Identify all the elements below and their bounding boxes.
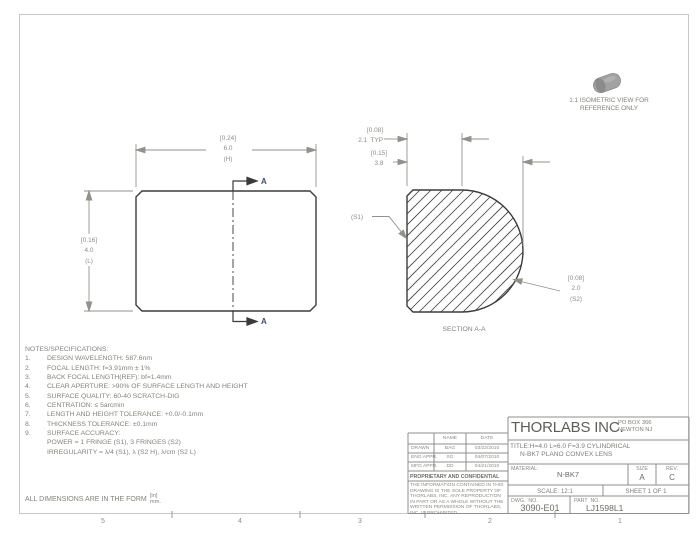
units-note: ALL DIMENSIONS ARE IN THE FORM [in] mm.	[25, 493, 161, 505]
sheet-value: SHEET 1 OF 1	[625, 488, 666, 495]
section-arrow-label-top: A	[261, 177, 267, 186]
approval-date: 04/07/2010	[475, 455, 499, 460]
note-item: 8.THICKNESS TOLERANCE: ±0.1mm	[25, 420, 248, 429]
approval-date: 03/22/2010	[475, 446, 499, 451]
units-fraction: [in] mm.	[150, 493, 161, 505]
note-text: DESIGN WAVELENGTH: 587.6nm	[47, 354, 152, 363]
proprietary-heading: PROPRIETARY AND CONFIDENTIAL	[410, 474, 499, 480]
note-number: 1.	[25, 354, 47, 363]
note-text: CENTRATION: ≤ 5arcmin	[47, 401, 124, 410]
size-value: A	[639, 473, 644, 482]
material-value: N-BK7	[557, 470, 579, 479]
note-text: POWER = 1 FRINGE (S1), 3 FRINGES (S2)	[47, 438, 181, 447]
approval-name: SG	[446, 455, 453, 460]
note-item: 9.SURFACE ACCURACY:	[25, 429, 248, 438]
units-mm: mm.	[150, 499, 161, 505]
drawing-sheet: 1:1 ISOMETRIC VIEW FOR REFERENCE ONLY [0…	[0, 0, 696, 540]
rev-label: REV.	[666, 466, 678, 472]
dim-value: 4.0	[85, 246, 94, 256]
note-text: THICKNESS TOLERANCE: ±0.1mm	[47, 420, 157, 429]
front-view-outline	[136, 191, 316, 311]
section-title: SECTION A-A	[442, 326, 485, 333]
note-text: LENGTH AND HEIGHT TOLERANCE: +0.0/-0.1mm	[47, 410, 203, 419]
note-item: 4.CLEAR APERTURE: >90% OF SURFACE LENGTH…	[25, 382, 248, 391]
dim-suffix: (H)	[224, 155, 233, 165]
dim-suffix: (S2)	[570, 295, 582, 305]
notes-specifications: NOTES/SPECIFICATIONS: 1.DESIGN WAVELENGT…	[25, 345, 248, 457]
note-text: IRREGULARITY = λ/4 (S1), λ (S2 H), λ/cm …	[47, 448, 196, 457]
drawing-linework	[0, 0, 696, 540]
drawing-title-line1: TITLE:H=4.0 L=6.0 F=3.9 CYLINDRICAL	[510, 443, 630, 450]
units-note-text: ALL DIMENSIONS ARE IN THE FORM	[25, 496, 147, 503]
dim-bracket: [0.24]	[220, 134, 236, 144]
approval-role: MFG APPR.	[411, 464, 438, 469]
iso-lens-icon	[591, 71, 622, 95]
rev-value: C	[669, 473, 675, 482]
note-text: BACK FOCAL LENGTH(REF): bf=1.4mm	[47, 373, 172, 382]
dwg-no-value: 3090-E01	[520, 503, 559, 513]
proprietary-text: THE INFORMATION CONTAINED IN THIS DRAWIN…	[410, 483, 505, 516]
note-number	[25, 438, 47, 447]
dim-value: 3.8	[375, 159, 384, 169]
dim-bracket: [0.08]	[568, 274, 584, 284]
approvals-date-header: DATE	[481, 436, 494, 441]
note-number: 3.	[25, 373, 47, 382]
section-radius-dimension: [0.08] 2.0 (S2)	[568, 274, 584, 305]
note-text: CLEAR APERTURE: >90% OF SURFACE LENGTH A…	[47, 382, 248, 391]
note-number: 4.	[25, 382, 47, 391]
material-label: MATERIAL:	[511, 466, 539, 472]
size-label: SIZE	[636, 466, 648, 472]
note-number: 7.	[25, 410, 47, 419]
approvals-name-header: NAME	[443, 436, 457, 441]
drawing-title-line2: N-BK7 PLANO CONVEX LENS	[520, 451, 612, 458]
zone-number-1: 1	[618, 518, 622, 525]
section-thickness-dimension: [0.15] 3.8	[371, 149, 387, 170]
zone-number-3: 3	[358, 518, 362, 525]
section-edge-dim-value: 2.1 TYP	[330, 136, 383, 146]
approval-date: 04/21/2010	[475, 464, 499, 469]
note-number: 5.	[25, 392, 47, 401]
approval-role: ENG APPR.	[411, 455, 437, 460]
approval-name: BAG	[445, 446, 455, 451]
note-text: SURFACE ACCURACY:	[47, 429, 120, 438]
company-logo: THORLABS INC.	[511, 419, 623, 436]
company-address-line2: NEWTON NJ	[618, 427, 652, 433]
zone-number-4: 4	[238, 518, 242, 525]
front-height-dimension: [0.16] 4.0 (L)	[81, 236, 97, 267]
dim-bracket: [0.16]	[81, 236, 97, 246]
notes-heading-row: NOTES/SPECIFICATIONS:	[25, 345, 248, 354]
note-number: 6.	[25, 401, 47, 410]
approval-name: DD	[446, 464, 453, 469]
note-text: SURFACE QUALITY: 60-40 SCRATCH-DIG	[47, 392, 179, 401]
notes-heading: NOTES/SPECIFICATIONS:	[25, 345, 108, 354]
note-item: IRREGULARITY = λ/4 (S1), λ (S2 H), λ/cm …	[25, 448, 248, 457]
scale-value: SCALE: 12:1	[537, 488, 573, 495]
zone-number-2: 2	[488, 518, 492, 525]
note-item: 5.SURFACE QUALITY: 60-40 SCRATCH-DIG	[25, 392, 248, 401]
note-number: 9.	[25, 429, 47, 438]
company-address-line1: PO BOX 366	[618, 420, 652, 426]
dim-value: 6.0	[224, 144, 233, 154]
iso-view-note-line1: 1:1 ISOMETRIC VIEW FOR	[569, 97, 649, 104]
note-number	[25, 448, 47, 457]
zone-number-5: 5	[101, 518, 105, 525]
iso-view-note-line2: REFERENCE ONLY	[580, 105, 638, 112]
note-item: POWER = 1 FRINGE (S1), 3 FRINGES (S2)	[25, 438, 248, 447]
note-number: 2.	[25, 364, 47, 373]
front-width-dimension: [0.24] 6.0 (H)	[220, 134, 236, 165]
note-item: 3.BACK FOCAL LENGTH(REF): bf=1.4mm	[25, 373, 248, 382]
note-text: FOCAL LENGTH: f=3.91mm ± 1%	[47, 364, 150, 373]
note-item: 6.CENTRATION: ≤ 5arcmin	[25, 401, 248, 410]
surface1-label: (S1)	[351, 213, 363, 223]
note-item: 1.DESIGN WAVELENGTH: 587.6nm	[25, 354, 248, 363]
note-number: 8.	[25, 420, 47, 429]
dim-bracket: [0.15]	[371, 149, 387, 159]
dim-value: 2.0	[572, 284, 581, 294]
part-no-value: LJ1598L1	[586, 503, 623, 513]
section-view-outline	[287, 190, 640, 312]
note-item: 7.LENGTH AND HEIGHT TOLERANCE: +0.0/-0.1…	[25, 410, 248, 419]
section-arrow-label-bottom: A	[261, 317, 267, 326]
approval-role: DRAWN	[411, 446, 429, 451]
section-edge-dim-bracket: [0.08]	[330, 126, 383, 136]
dim-suffix: (L)	[85, 257, 93, 267]
note-item: 2.FOCAL LENGTH: f=3.91mm ± 1%	[25, 364, 248, 373]
